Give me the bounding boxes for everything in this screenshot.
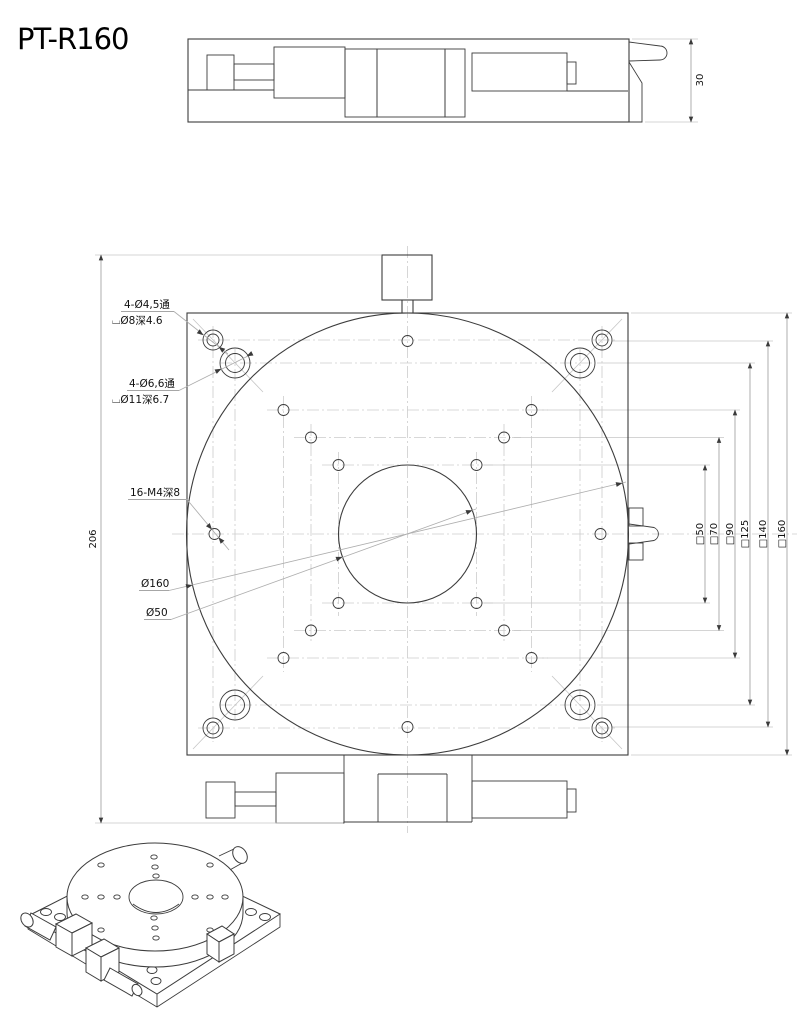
- worm-shaft: [234, 64, 274, 80]
- dim-sq140: □140: [758, 520, 769, 549]
- micrometer-barrel: [472, 53, 567, 91]
- iso-side-clamp: [207, 926, 234, 962]
- callout-center-bore: Ø50: [146, 607, 168, 619]
- top-adjust-knob: [382, 255, 432, 313]
- technical-drawing: 30: [0, 0, 800, 1026]
- callout-corner-small-line1: 4-Ø4,5通: [124, 299, 170, 311]
- dim-sq70: □70: [709, 523, 720, 545]
- thickness-dimension: 30: [695, 74, 706, 87]
- drawing-sheet: PT-R160 30: [0, 0, 800, 1026]
- clamp-lever: [629, 42, 667, 61]
- micrometer-tip: [567, 62, 576, 84]
- dim-sq160: □160: [777, 520, 788, 549]
- worm-gear-housing: [274, 47, 345, 98]
- callout-tapped-holes: 16-M4深8: [130, 487, 180, 499]
- dim-sq50: □50: [695, 523, 706, 545]
- callout-corner-large-line2: ⌴Ø11深6.7: [112, 394, 169, 406]
- side-elevation-view: 30: [188, 39, 706, 122]
- callout-corner-small-line2: ⌴Ø8深4.6: [112, 315, 163, 327]
- bottom-drive-assembly: [206, 755, 576, 823]
- callout-corner-large-line1: 4-Ø6,6通: [129, 378, 175, 390]
- height-dimension: 206: [88, 529, 99, 548]
- worm-end-block: [207, 55, 234, 90]
- plan-view: □50 □70 □90 □125 □140 □160 206 4-Ø4,5通 ⌴…: [88, 246, 797, 833]
- drive-center-block: [377, 49, 445, 117]
- isometric-view: [18, 843, 280, 1007]
- hole-callouts: 4-Ø4,5通 ⌴Ø8深4.6 4-Ø6,6通 ⌴Ø11深6.7 16-M4深8: [112, 299, 626, 620]
- dim-sq125: □125: [740, 520, 751, 549]
- callout-table-diameter: Ø160: [141, 578, 169, 590]
- dim-sq90: □90: [725, 523, 736, 545]
